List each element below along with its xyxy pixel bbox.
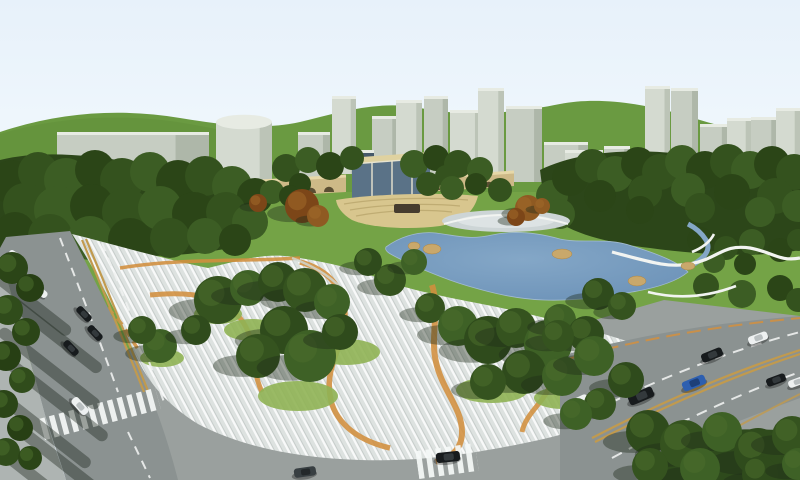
forest-tree bbox=[219, 224, 251, 256]
tree-highlight bbox=[610, 294, 625, 309]
tree-highlight bbox=[571, 319, 591, 339]
building-roof bbox=[396, 100, 422, 103]
car-roof bbox=[443, 453, 454, 461]
tree-highlight bbox=[261, 265, 283, 287]
park-tree bbox=[16, 274, 44, 302]
rock bbox=[423, 244, 441, 254]
building-roof bbox=[506, 106, 542, 109]
tree-highlight bbox=[441, 309, 463, 331]
building-roof bbox=[776, 108, 800, 111]
tree-highlight bbox=[11, 369, 25, 383]
park-rendering-stage bbox=[0, 0, 800, 480]
tree-highlight bbox=[535, 199, 544, 208]
building-roof bbox=[604, 146, 630, 149]
park-rendering bbox=[0, 0, 800, 480]
building-roof bbox=[298, 132, 330, 135]
tree-highlight bbox=[287, 271, 311, 295]
tree-highlight bbox=[585, 280, 603, 298]
building-roof bbox=[450, 110, 482, 113]
building-roof bbox=[727, 118, 751, 121]
building bbox=[506, 106, 542, 182]
forest-tree bbox=[150, 218, 190, 258]
forest-tree bbox=[340, 146, 364, 170]
tree-highlight bbox=[545, 322, 563, 340]
forest-tree bbox=[316, 152, 344, 180]
tree-highlight bbox=[473, 367, 493, 387]
tree-highlight bbox=[418, 295, 435, 312]
tree-highlight bbox=[264, 310, 290, 336]
building-roof bbox=[478, 88, 504, 91]
building-roof bbox=[700, 124, 728, 127]
building-roof bbox=[216, 115, 272, 130]
building-roof bbox=[57, 132, 209, 135]
forest-tree bbox=[745, 197, 775, 227]
tree-highlight bbox=[325, 317, 345, 337]
tree-highlight bbox=[240, 337, 264, 361]
tree-highlight bbox=[499, 311, 521, 333]
building-roof bbox=[751, 117, 777, 120]
tree-highlight bbox=[705, 415, 727, 437]
tree-highlight bbox=[577, 339, 599, 361]
building-roof bbox=[332, 96, 356, 99]
tree-highlight bbox=[403, 251, 417, 265]
tree-highlight bbox=[630, 413, 654, 437]
building-roof bbox=[544, 142, 588, 145]
rock bbox=[628, 276, 646, 286]
tree-highlight bbox=[317, 287, 337, 307]
forest-tree bbox=[440, 176, 464, 200]
tree-highlight bbox=[635, 451, 655, 471]
forest-tree bbox=[584, 180, 616, 212]
building-roof bbox=[671, 88, 698, 91]
tree-highlight bbox=[509, 209, 519, 219]
tree-highlight bbox=[775, 419, 797, 441]
building-roof bbox=[645, 86, 670, 89]
forest-tree bbox=[714, 174, 750, 210]
rock bbox=[552, 249, 572, 259]
forest-tree bbox=[187, 218, 223, 254]
forest-tree bbox=[728, 280, 756, 308]
tree-highlight bbox=[683, 451, 705, 473]
tree-highlight bbox=[563, 400, 581, 418]
tree-highlight bbox=[251, 195, 261, 205]
tree-highlight bbox=[18, 276, 33, 291]
rock bbox=[681, 262, 695, 270]
tree-highlight bbox=[14, 320, 29, 335]
tree-highlight bbox=[611, 365, 631, 385]
tree-highlight bbox=[288, 192, 307, 211]
tree-highlight bbox=[356, 250, 371, 265]
tree-highlight bbox=[9, 417, 23, 431]
tree-highlight bbox=[309, 207, 321, 219]
building-roof bbox=[372, 116, 398, 119]
rock bbox=[408, 242, 420, 250]
planting-bed bbox=[258, 381, 338, 411]
forest-tree bbox=[734, 253, 756, 275]
park-tree bbox=[12, 318, 40, 346]
tree-highlight bbox=[130, 318, 145, 333]
forest-tree bbox=[465, 173, 487, 195]
forest-tree bbox=[626, 196, 654, 224]
tree-highlight bbox=[184, 317, 201, 334]
amphitheater-stage bbox=[394, 204, 420, 213]
building-side bbox=[498, 88, 504, 182]
building-roof bbox=[424, 96, 448, 99]
forest-tree bbox=[416, 172, 440, 196]
tree-highlight bbox=[745, 459, 765, 479]
tree-highlight bbox=[506, 353, 530, 377]
park-tree bbox=[18, 446, 42, 470]
park-tree bbox=[9, 367, 35, 393]
tree-highlight bbox=[20, 448, 33, 461]
forest-tree bbox=[488, 178, 512, 202]
park-tree bbox=[7, 415, 33, 441]
forest-tree bbox=[685, 193, 715, 223]
